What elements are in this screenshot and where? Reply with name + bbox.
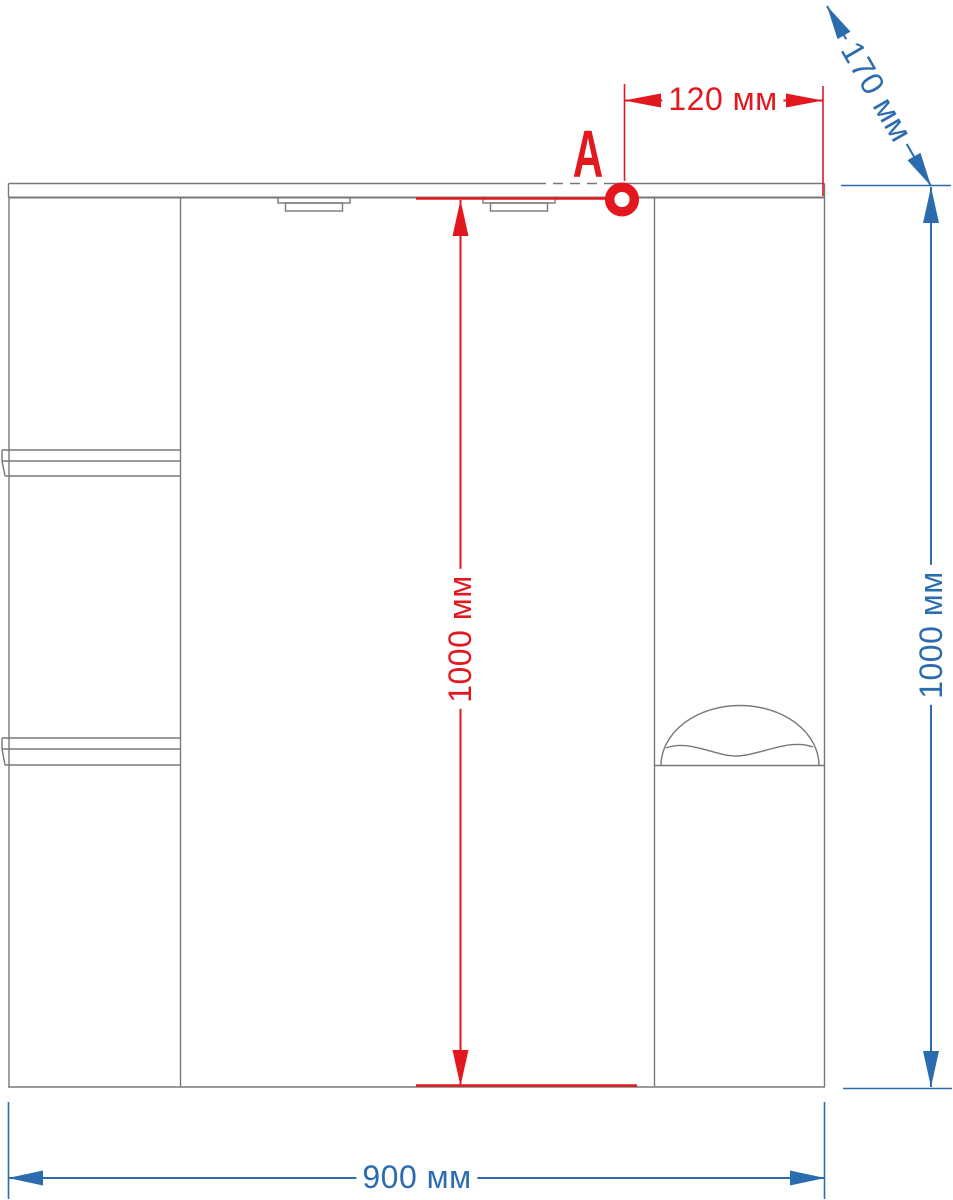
dimension-drawing: A 120 мм 170 мм 1000 мм 1000 мм 900 мм	[0, 0, 953, 1200]
dim-label-120: 120 мм	[662, 83, 783, 117]
dim-label-1000-blue: 1000 мм	[915, 565, 949, 705]
shelf-lower	[2, 738, 181, 765]
dim-label-1000-red: 1000 мм	[444, 569, 478, 709]
lamp-left	[278, 198, 350, 212]
marker-a-label: A	[573, 121, 603, 188]
dome-handle	[661, 706, 819, 766]
marker-a-ring	[610, 187, 635, 212]
dim-label-900: 900 мм	[356, 1161, 477, 1195]
cabinet-linework	[2, 184, 825, 1088]
blue-dimensions	[8, 6, 952, 1199]
shelf-upper	[2, 450, 181, 476]
